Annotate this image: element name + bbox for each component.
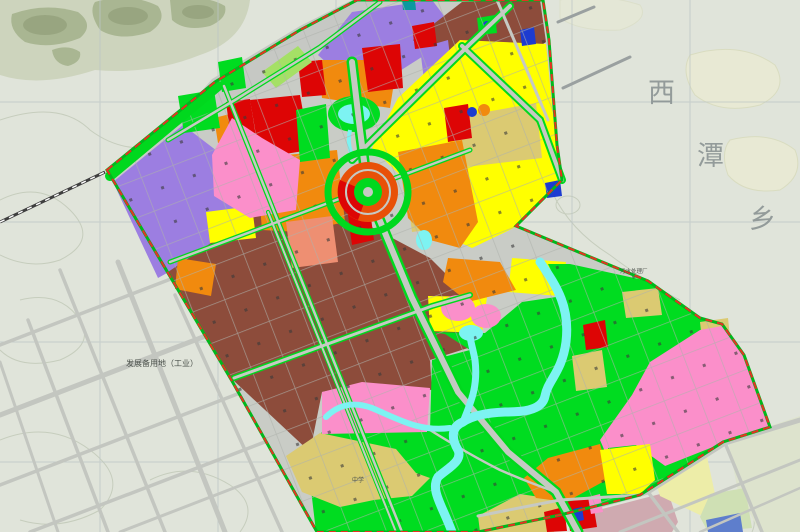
treatment-plant-label: 污水处理厂 (620, 267, 648, 275)
ring-road-plaza (328, 152, 408, 232)
planning-map: 西 潭 乡 发展备用地（工业） 污水处理厂 中学 (0, 0, 800, 532)
school-label: 中学 (352, 476, 364, 484)
township-label-char2: 潭 (697, 141, 724, 171)
map-canvas: 西 潭 乡 发展备用地（工业） 污水处理厂 中学 (0, 0, 800, 532)
ring-center (363, 187, 373, 197)
township-label-char3: 乡 (749, 204, 776, 234)
township-label-char1: 西 (648, 78, 675, 108)
reserve-area-label: 发展备用地（工业） (126, 358, 198, 368)
